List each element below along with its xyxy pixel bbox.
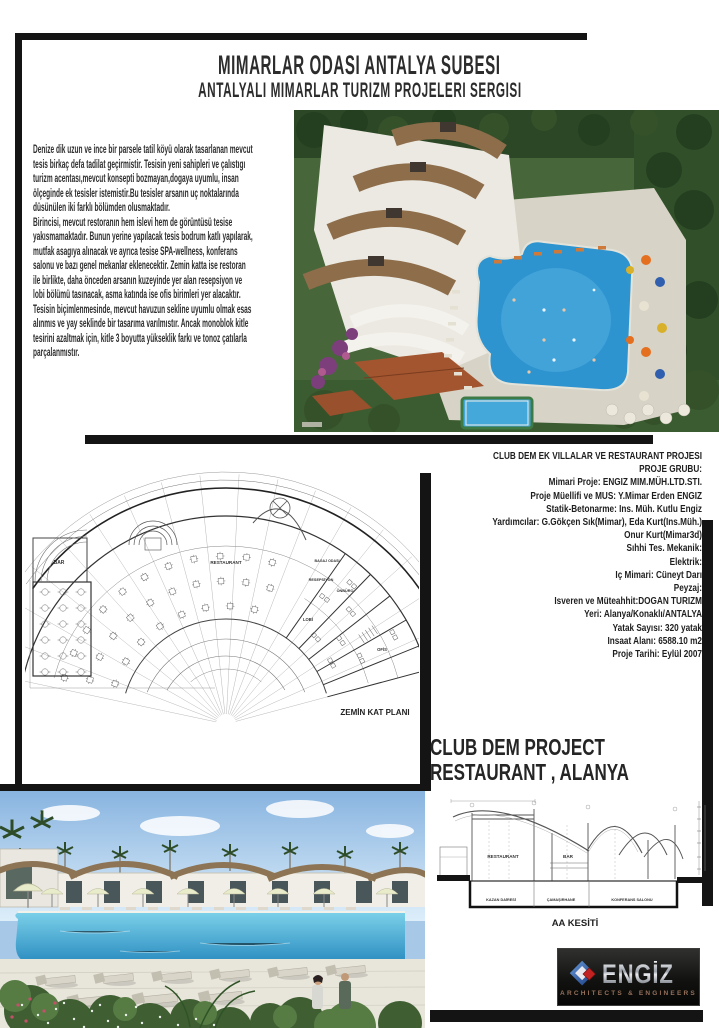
divider-under-aerial-photo bbox=[85, 435, 653, 444]
page-title-line2: ANTALYALI MIMARLAR TURIZM PROJELERI SERG… bbox=[198, 79, 522, 103]
credits-line: CLUB DEM EK VILLALAR VE RESTAURANT PROJE… bbox=[423, 450, 702, 463]
frame-top-bar bbox=[15, 33, 587, 40]
plan-label-restaurant: RESTAURANT bbox=[210, 560, 241, 565]
credits-line: Elektrik: bbox=[423, 556, 702, 569]
credits-line: Isveren ve Müteahhit:DOGAN TURIZM bbox=[423, 595, 702, 608]
poster-board: MIMARLAR ODASI ANTALYA SUBESI ANTALYALI … bbox=[0, 0, 719, 1028]
engiz-logo: ENGİZ ARCHITECTS & ENGINEERS bbox=[557, 948, 700, 1006]
project-title-line1: CLUB DEM PROJECT bbox=[430, 735, 629, 760]
plan-label-lobi: LOBİ bbox=[303, 617, 313, 622]
section-label-camasirhane: ÇAMAŞIRHANE bbox=[547, 898, 576, 902]
section-label-restaurant: RESTAURANT bbox=[487, 854, 518, 859]
page-title: MIMARLAR ODASI ANTALYA SUBESI bbox=[0, 50, 719, 81]
credits-line: Iç Mimari: Cüneyt Darı bbox=[423, 569, 702, 582]
credits-line: Peyzaj: bbox=[423, 582, 702, 595]
plan-label-bar: BAR bbox=[54, 560, 65, 566]
credits-line: Mimari Proje: ENGIZ MIM.MÜH.LTD.STI. bbox=[423, 476, 702, 489]
credits-line: Yeri: Alanya/Konaklı/ANTALYA bbox=[423, 608, 702, 621]
render-photo-pool bbox=[0, 791, 425, 1028]
plan-label-ofis: OFİS bbox=[377, 647, 387, 652]
photo-corner-mark bbox=[302, 422, 322, 427]
frame-left-bar bbox=[15, 33, 22, 784]
frame-bottom-bar bbox=[430, 1010, 703, 1022]
divider-above-render bbox=[0, 784, 431, 791]
credits-line: Onur Kurt(Mimar3d) bbox=[423, 529, 702, 542]
plan-label-resepsiyon: RESEPSİYON bbox=[309, 578, 334, 582]
credits-line: PROJE GRUBU: bbox=[423, 463, 702, 476]
floor-plan-drawing: BAR RESTAURANT BAGAJ ODASI RESEPSİYON ÖN… bbox=[25, 450, 419, 742]
credits-line: Proje Tarihi: Eylül 2007 bbox=[423, 648, 702, 661]
engiz-logo-name: ENGİZ bbox=[602, 961, 674, 987]
credits-line: Insaat Alanı: 6588.10 m2 bbox=[423, 635, 702, 648]
section-label-bar: BAR bbox=[563, 854, 574, 859]
plan-label-onburo: ÖNBÜRO bbox=[337, 588, 354, 593]
section-label-konferans: KONFERANS SALONU bbox=[611, 898, 652, 902]
page-title-line1: MIMARLAR ODASI ANTALYA SUBESI bbox=[218, 50, 501, 81]
project-title-line2: RESTAURANT , ALANYA bbox=[430, 760, 629, 785]
aerial-photo-art bbox=[294, 110, 719, 432]
credits-line: Yardımcılar: G.Gökçen Sık(Mimar), Eda Ku… bbox=[423, 516, 702, 529]
engiz-diamond-icon bbox=[568, 959, 598, 989]
plan-label-bagaj: BAGAJ ODASI bbox=[315, 559, 340, 563]
plan-caption: ZEMİN KAT PLANI bbox=[340, 708, 409, 717]
page-subtitle: ANTALYALI MIMARLAR TURIZM PROJELERI SERG… bbox=[0, 79, 719, 103]
engiz-logo-tagline: ARCHITECTS & ENGINEERS bbox=[560, 990, 697, 997]
credits-line: Proje Müellifi ve MUS: Y.Mimar Erden ENG… bbox=[423, 490, 702, 503]
render-photo-art bbox=[0, 791, 425, 1028]
floor-plan-svg: BAR RESTAURANT BAGAJ ODASI RESEPSİYON ÖN… bbox=[25, 450, 419, 742]
credits-line: Sıhhi Tes. Mekanik: bbox=[423, 542, 702, 555]
credits-line: Statik-Betonarme: Ins. Müh. Kutlu Engiz bbox=[423, 503, 702, 516]
plan-tree-marker bbox=[270, 498, 290, 518]
aerial-photo-existing-resort bbox=[294, 110, 719, 432]
credits-line: Yatak Sayısı: 320 yatak bbox=[423, 622, 702, 635]
section-drawing-svg: RESTAURANT BAR KAZAN DAİRESİ ÇAMAŞIRHANE… bbox=[437, 795, 713, 932]
section-drawing: RESTAURANT BAR KAZAN DAİRESİ ÇAMAŞIRHANE… bbox=[437, 795, 713, 932]
section-caption: AA KESİTİ bbox=[552, 918, 599, 929]
project-credits: CLUB DEM EK VILLALAR VE RESTAURANT PROJE… bbox=[423, 450, 702, 661]
section-label-kazan: KAZAN DAİRESİ bbox=[486, 898, 516, 902]
project-title: CLUB DEM PROJECT RESTAURANT , ALANYA bbox=[430, 735, 699, 785]
project-description: Denize dik uzun ve ince bir parsele tati… bbox=[33, 143, 295, 361]
